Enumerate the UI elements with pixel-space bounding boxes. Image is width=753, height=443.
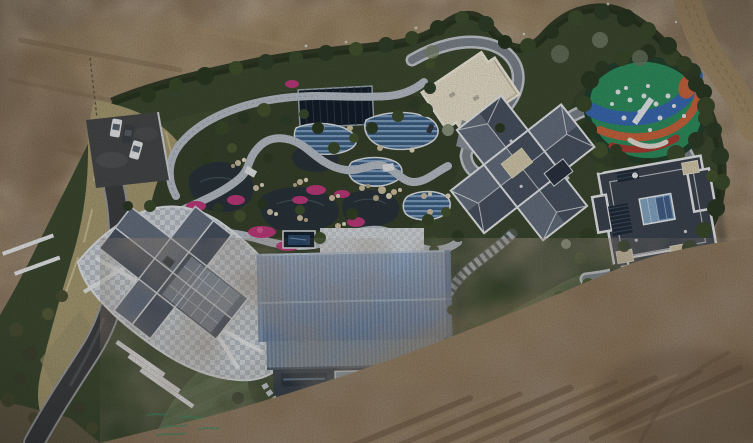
aerial-photo	[0, 0, 753, 443]
aerial-photo-canvas	[0, 0, 753, 443]
vignette	[0, 0, 753, 443]
